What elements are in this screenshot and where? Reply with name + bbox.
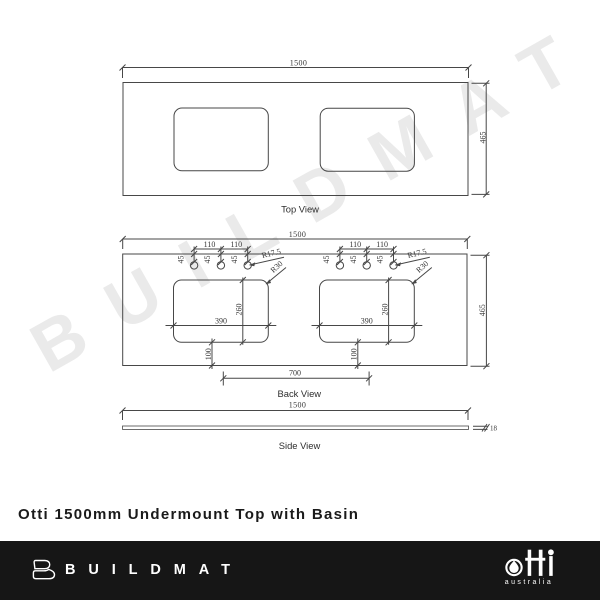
svg-text:australia: australia <box>505 579 554 586</box>
